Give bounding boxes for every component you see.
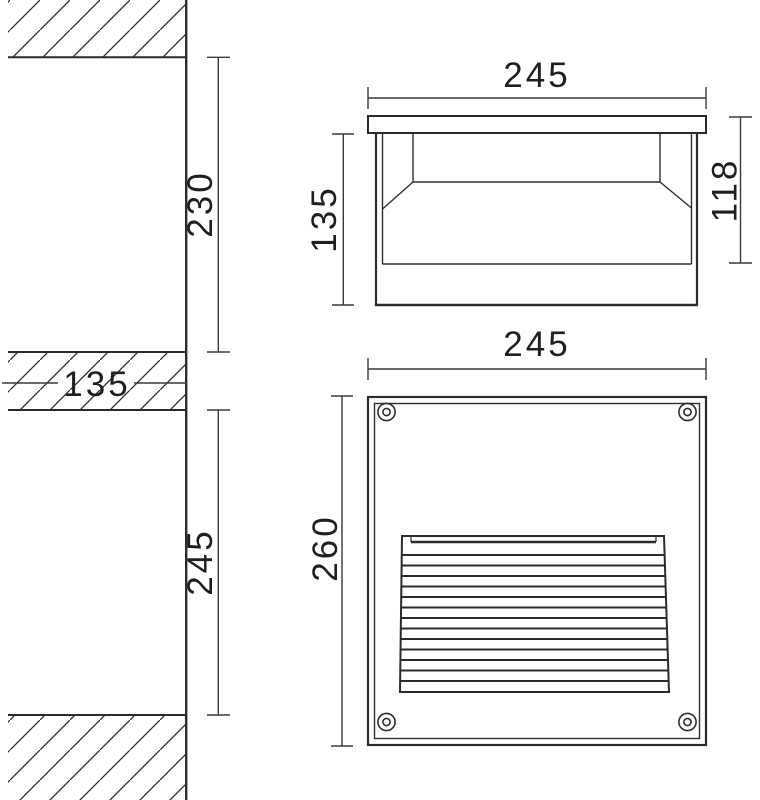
louver-slats <box>400 555 669 681</box>
dimension-offset-above: 230 <box>181 57 230 352</box>
wall-hatch-top <box>8 0 186 57</box>
dimension-label-245-front: 245 <box>503 325 570 364</box>
housing-inner-walls <box>383 133 692 264</box>
side-view: 245 135 <box>305 56 752 305</box>
wall-hatch-bottom <box>8 715 186 800</box>
reflector-plate <box>383 133 692 209</box>
dimension-label-135-depth: 135 <box>305 185 344 252</box>
housing-outer-walls <box>375 133 698 305</box>
dimension-label-260: 260 <box>306 514 345 581</box>
technical-drawing-canvas: 230 135 245 245 <box>0 0 760 800</box>
dimension-label-230: 230 <box>181 170 220 237</box>
dimension-front-height: 260 <box>306 396 353 746</box>
dimension-label-135-wall: 135 <box>63 365 130 404</box>
front-view: 245 <box>306 325 706 746</box>
technical-drawing-page: 230 135 245 245 <box>0 0 760 800</box>
dimension-label-245-opening: 245 <box>181 528 220 595</box>
faceplate-inner <box>375 404 700 739</box>
dimension-body-depth: 135 <box>305 134 354 305</box>
fixture-flange <box>368 116 706 133</box>
screw-top-left <box>378 403 395 420</box>
dimension-opening-height: 245 <box>181 410 230 715</box>
wall-section-view: 230 135 245 <box>2 0 230 800</box>
screw-bottom-right <box>679 713 696 730</box>
dimension-side-width: 245 <box>368 56 706 109</box>
dimension-label-118: 118 <box>706 158 745 223</box>
louver-grille <box>400 536 669 692</box>
screw-bottom-left <box>378 713 395 730</box>
dimension-front-width: 245 <box>368 325 706 380</box>
dimension-label-245-side: 245 <box>503 56 570 95</box>
screw-top-right <box>679 403 696 420</box>
dimension-recess-depth: 118 <box>706 117 753 263</box>
louver-frame <box>400 536 669 692</box>
